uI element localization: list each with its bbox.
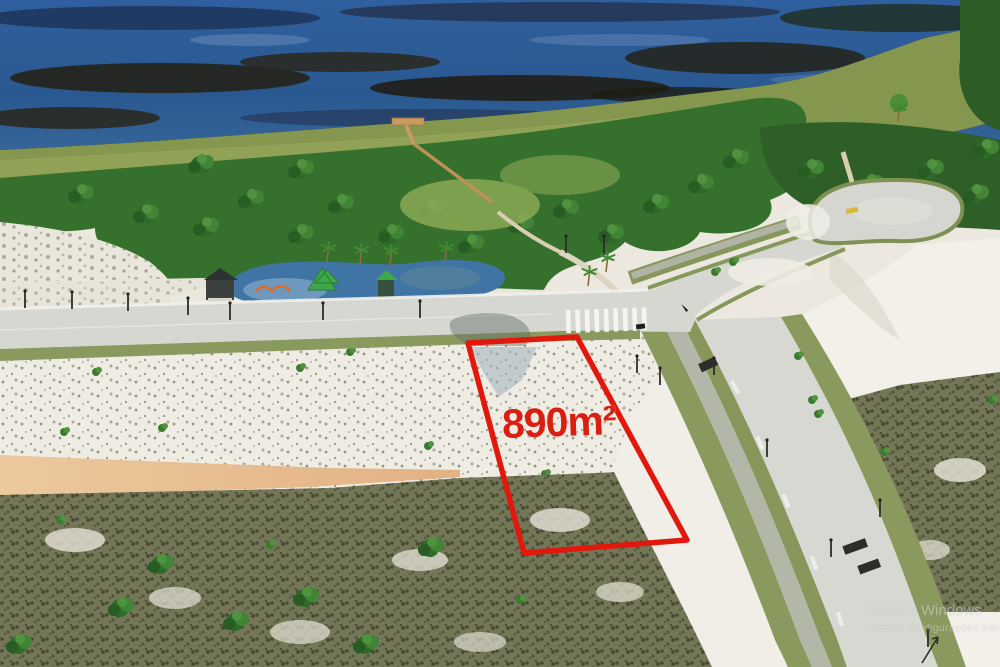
crosswalk — [566, 307, 647, 333]
watermark-line1: Ativar o Windows — [866, 603, 1000, 620]
aerial-photo-canvas — [0, 0, 1000, 667]
aerial-photo: 890m² Ativar o Windows Acesse Configuraç… — [0, 0, 1000, 667]
watermark-line2: Acesse Configurações para ativar o Windo… — [866, 623, 1000, 635]
lot-area-label: 890m² — [501, 397, 616, 448]
activation-watermark: Ativar o Windows Acesse Configurações pa… — [866, 603, 1000, 634]
